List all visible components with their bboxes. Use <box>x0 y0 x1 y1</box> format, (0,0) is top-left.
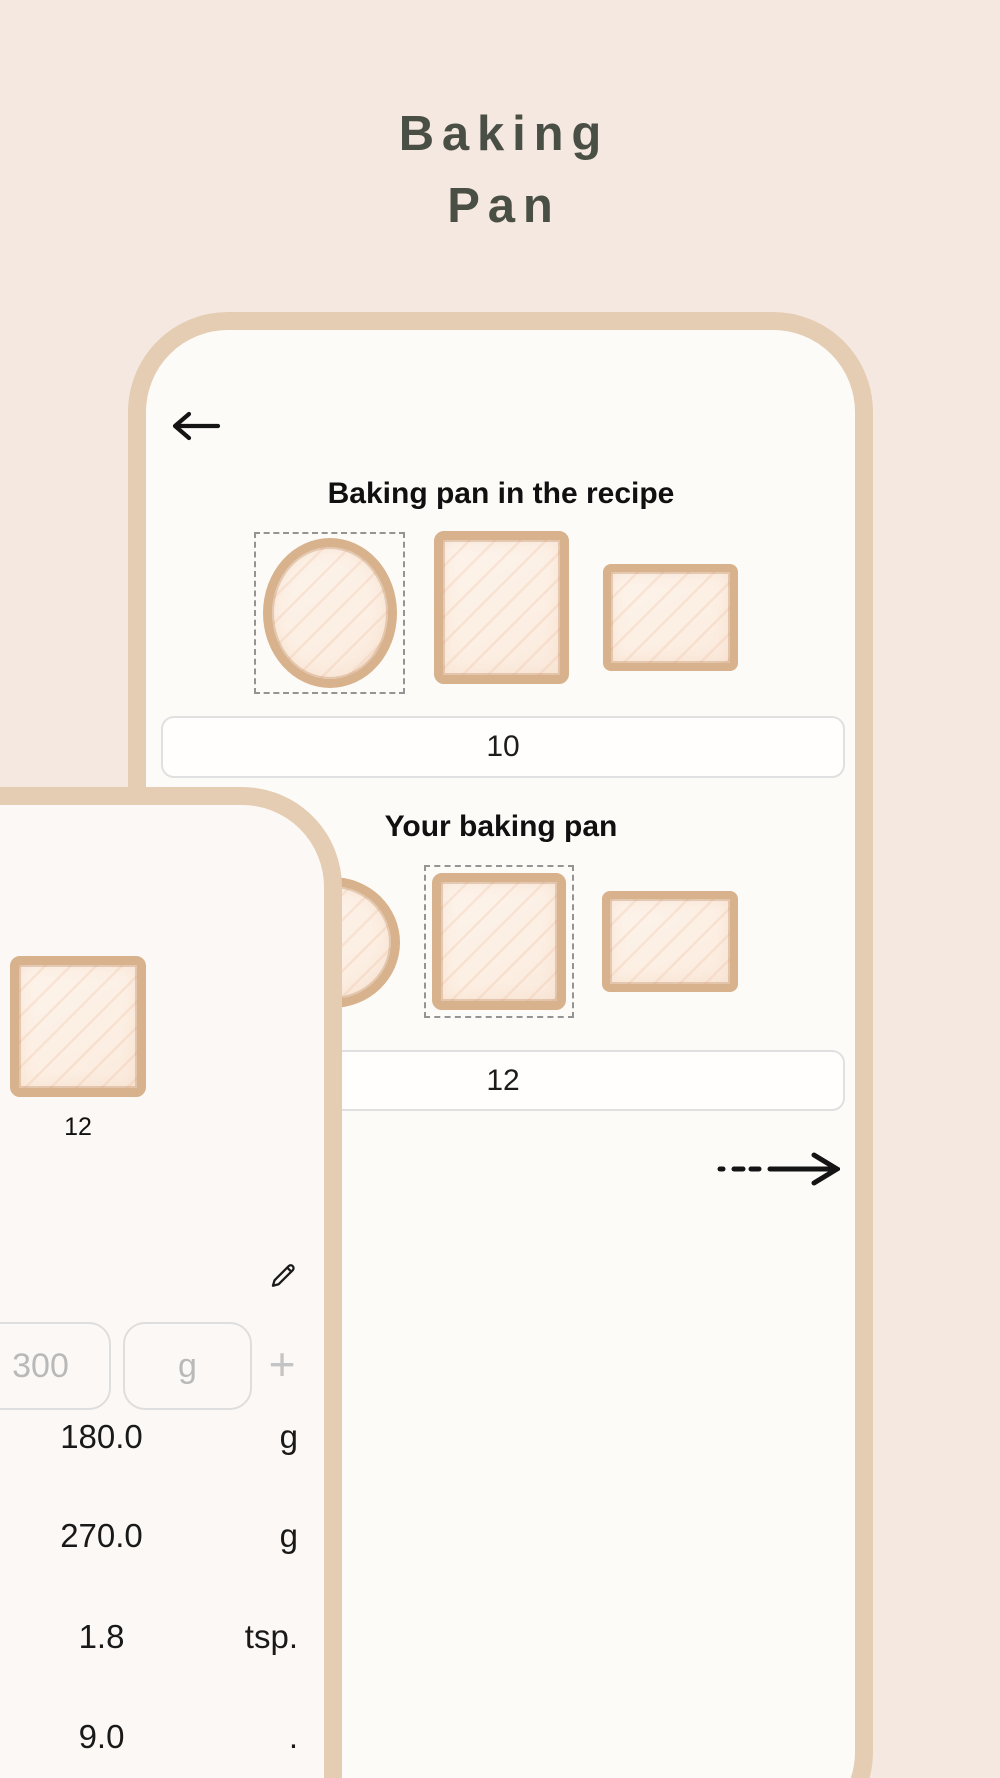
ingredient-row: 1.8 tsp. <box>0 1613 298 1661</box>
recipe-pan-option-rectangle[interactable] <box>603 564 738 671</box>
dashed-arrow-right-icon[interactable] <box>714 1150 840 1188</box>
ingredient-unit: tsp. <box>245 1613 298 1661</box>
unit-input[interactable]: g <box>123 1322 252 1410</box>
recipe-pan-size-input[interactable]: 10 <box>161 716 845 778</box>
ingredient-row: 9.0 . <box>0 1713 298 1761</box>
your-pan-option-square[interactable] <box>424 865 574 1018</box>
add-ingredient-button[interactable]: + <box>256 1322 308 1410</box>
ingredient-row: 180.0 g <box>0 1413 298 1461</box>
pencil-icon[interactable] <box>266 1258 298 1290</box>
ingredient-row: 270.0 g <box>0 1512 298 1560</box>
amount-input[interactable]: 300 <box>0 1322 111 1410</box>
ingredient-unit: g <box>280 1512 298 1560</box>
recipe-pan-heading: Baking pan in the recipe <box>146 477 856 511</box>
back-arrow-icon[interactable] <box>169 410 221 442</box>
ingredient-amount: 180.0 <box>0 1413 203 1461</box>
recipe-pan-option-square[interactable] <box>434 531 569 684</box>
square-pan-icon <box>432 873 566 1010</box>
ingredient-unit: g <box>280 1413 298 1461</box>
page-title-line1: Baking <box>0 98 1000 170</box>
ingredient-amount: 1.8 <box>0 1613 203 1661</box>
page-title: Baking Pan <box>0 98 1000 242</box>
screenshot-root: Baking Pan Baking pan in the recipe 10 Y… <box>0 0 1000 1778</box>
ingredient-amount: 270.0 <box>0 1512 203 1560</box>
ingredient-amount: 9.0 <box>0 1713 203 1761</box>
ingredient-unit: . <box>289 1713 298 1761</box>
your-pan-option-rectangle[interactable] <box>602 891 738 992</box>
selected-pan-preview <box>10 956 146 1097</box>
recipe-pan-option-circle[interactable] <box>254 532 405 694</box>
page-title-line2: Pan <box>0 170 1000 242</box>
selected-pan-size-label: 12 <box>10 1113 146 1142</box>
circle-pan-icon <box>263 538 397 688</box>
